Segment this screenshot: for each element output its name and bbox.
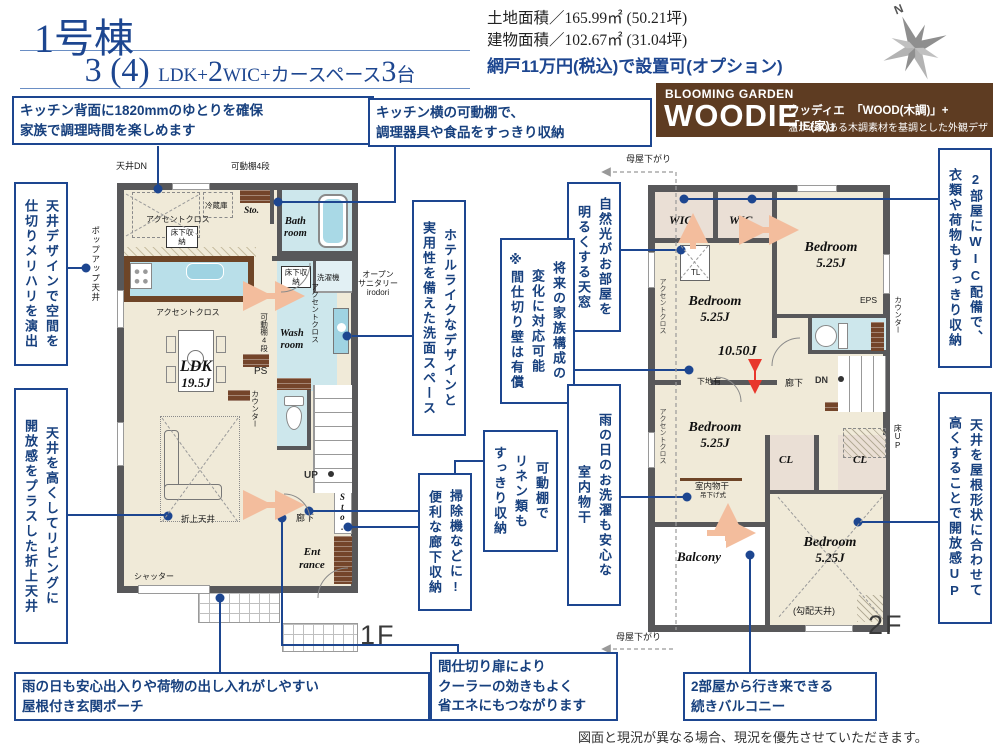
wall <box>655 522 765 527</box>
callout-col: 天井デザインで空間を <box>42 189 61 359</box>
disclaimer: 図面と現況が異なる場合、現況を優先させていただきます。 <box>578 727 928 746</box>
label-up: UP <box>304 470 318 482</box>
callout-col: リネン類も <box>511 437 530 545</box>
callout-partition-door: 間仕切り扉により クーラーの効きもよく 省エネにもつながります <box>430 652 618 721</box>
callout-col: 自然光がお部屋を <box>595 189 614 325</box>
stairs-2f <box>838 356 886 412</box>
label-bedroom-4: Bedroom 5.25J <box>780 535 880 566</box>
callout-col: 高くすることで開放感UP <box>945 399 964 617</box>
callout-col: 雨の日のお洗濯も安心な <box>595 391 614 599</box>
label-moya-bottom: 母屋下がり <box>616 632 661 642</box>
land-area: 土地面積／165.99㎡ (50.21坪) <box>487 8 783 30</box>
callout-col: すっきり収納 <box>490 437 509 545</box>
callout-col: 2部屋にWIC配備で、 <box>966 155 985 361</box>
label-shitaji: 下地有 <box>697 377 721 386</box>
label-accent-wash: アクセントクロス <box>310 283 319 343</box>
shutter-window <box>138 585 210 594</box>
callout-indoor-drying: 雨の日のお洗濯も安心な 室内物干 <box>567 384 621 606</box>
brand-tagline: 温かみのある木調素材を基調とした外観デザイン <box>788 119 993 149</box>
sanitary-sink <box>333 308 349 354</box>
wall <box>777 314 886 318</box>
building-area: 建物面積／102.67㎡ (31.04坪) <box>487 30 783 52</box>
label-cl1: CL <box>779 454 793 467</box>
label-underfloor-1: 床下収納 <box>166 226 198 248</box>
layout-part: 3 (4) <box>85 52 159 89</box>
area-info: 土地面積／165.99㎡ (50.21坪) 建物面積／102.67㎡ (31.0… <box>487 8 783 80</box>
label-folded-ceiling: 折上天井 <box>181 515 215 525</box>
label-sto-top: Sto. <box>244 206 259 217</box>
hall-storage-shelf <box>334 536 352 584</box>
callout-line: 省エネにもつながります <box>438 696 610 716</box>
callout-col: 室内物干 <box>574 391 593 599</box>
floor-label-2f: 2F <box>868 610 904 641</box>
label-ceiling-dn: 天井DN <box>116 161 147 171</box>
layout-part: LDK+ <box>158 65 208 86</box>
toilet-shelf <box>277 378 311 390</box>
label-hallway-1f: 廊下 <box>296 513 314 523</box>
stove-icon <box>130 263 152 289</box>
callout-col: 便利な廊下収納 <box>425 480 444 604</box>
screen-option-note: 網戸11万円(税込)で設置可(オプション) <box>487 55 783 80</box>
label-movable-shelf-top: 可動棚4段 <box>231 162 270 172</box>
callout-wic-rooms: 2部屋にWIC配備で、 衣類や荷物もすっきり収納 <box>938 148 992 368</box>
label-bedroom-3: Bedroom 5.25J <box>667 420 763 451</box>
wall <box>713 192 718 238</box>
layout-part: WIC+カースペース <box>223 65 381 86</box>
label-total-j: 10.50J <box>718 344 757 360</box>
callout-col: 明るくする天窓 <box>574 189 593 325</box>
label-counter-2f: カウンター <box>893 296 902 334</box>
label-sto-hall: Sto. <box>337 492 347 532</box>
callout-line: キッチン横の可動棚で、 <box>376 103 644 123</box>
callout-line: 2部屋から行き来できる <box>691 677 869 697</box>
brand-reading: ウッディエ <box>788 105 845 117</box>
callout-line: クーラーの効きもよく <box>438 677 610 697</box>
storage-top-shelf <box>240 190 270 203</box>
label-shutter: シャッター <box>134 572 174 581</box>
label-fridge: 冷蔵庫 <box>205 202 228 211</box>
label-eps: EPS <box>860 296 877 306</box>
wall <box>655 380 681 385</box>
callout-line: 家族で調理時間を楽しめます <box>20 121 366 141</box>
balcony-area <box>655 527 765 625</box>
callout-line: 屋根付き玄関ポーチ <box>22 697 422 717</box>
label-hallway-2f: 廊下 <box>785 378 803 388</box>
callout-hotel-wash: ホテルライクなデザインと 実用性を備えた洗面スペース <box>412 200 466 436</box>
label-accent-2: アクセントクロス <box>658 408 666 464</box>
layout-summary: 3 (4) LDK+2WIC+カースペース3台 <box>60 52 440 90</box>
callout-future-family: 将来の家族構成の 変化に対応可能 ※間仕切り壁は有償 <box>500 238 575 404</box>
label-accent-ldk: アクセントクロス <box>156 308 220 317</box>
label-balcony: Balcony <box>677 550 721 565</box>
wall <box>272 256 352 261</box>
window <box>117 290 124 328</box>
window <box>172 183 210 190</box>
callout-hall-storage: 掃除機などに! 便利な廊下収納 <box>418 473 472 611</box>
window <box>648 432 655 468</box>
chair <box>166 336 176 353</box>
label-floor-up: 床UP <box>893 424 902 450</box>
label-accent-1: アクセントクロス <box>658 278 666 334</box>
callout-col: 開放感をプラスした折上天井 <box>21 395 40 637</box>
flyer-canvas: 1号棟 3 (4) LDK+2WIC+カースペース3台 土地面積／165.99㎡… <box>0 0 1000 750</box>
label-indoor-dry: 室内物干 <box>695 482 729 492</box>
callout-col: 天井を高くしてリビングに <box>42 395 61 637</box>
wall <box>765 490 770 625</box>
toilet-bowl-2f <box>815 325 837 347</box>
callout-col: 仕切りメリハリを演出 <box>21 189 40 359</box>
label-bedroom-2: Bedroom 5.25J <box>667 294 763 325</box>
window <box>797 185 837 192</box>
label-ps: PS <box>254 366 267 378</box>
brand-banner: BLOOMING GARDEN WOODIE ウッディエ 「WOOD(木調)」+… <box>656 83 993 137</box>
callout-porch: 雨の日も安心出入りや荷物の出し入れがしやすい 屋根付き玄関ポーチ <box>14 672 430 721</box>
folded-ceiling-outline <box>160 416 240 522</box>
callout-col: 将来の家族構成の <box>549 245 568 397</box>
callout-line: 雨の日も安心出入りや荷物の出し入れがしやすい <box>22 677 422 697</box>
layout-part: 2 <box>208 55 223 88</box>
callout-line: 続きバルコニー <box>691 697 869 717</box>
label-open-sanitary: オープン サニタリー irodori <box>352 270 404 298</box>
callout-sloped-ceiling: 天井を屋根形状に合わせて 高くすることで開放感UP <box>938 392 992 624</box>
toilet-tank-2f <box>838 323 848 349</box>
callout-line: キッチン背面に1820mmのゆとりを確保 <box>20 101 366 121</box>
callout-col: 掃除機などに! <box>446 480 465 604</box>
chair <box>216 336 226 353</box>
layout-part: 台 <box>396 65 415 86</box>
compass-n-label: N <box>892 2 905 17</box>
label-sloped-ceiling: (勾配天井) <box>793 606 835 616</box>
kitchen-sink <box>186 263 224 280</box>
label-accent-kitchen: アクセントクロス <box>146 215 210 224</box>
label-counter-1f: カウンター <box>250 390 259 428</box>
callout-col: ホテルライクなデザインと <box>440 207 459 429</box>
toilet-tank <box>284 396 304 406</box>
wall <box>655 238 777 243</box>
label-wic2: WIC <box>729 214 752 228</box>
callout-kitchen-shelf: キッチン横の可動棚で、 調理器具や食品をすっきり収納 <box>368 98 652 147</box>
callout-balcony: 2部屋から行き来できる 続きバルコニー <box>683 672 877 721</box>
label-washer: 洗濯機 <box>317 274 340 283</box>
layout-part: 3 <box>381 55 396 88</box>
label-ldk: LDK 19.5J <box>168 358 224 391</box>
window <box>117 422 124 466</box>
floor-plan-1f: 冷蔵庫 Sto. Bathroom アクセントクロス 床下収納 アクセントクロス <box>117 183 358 593</box>
label-bedroom-1: Bedroom 5.25J <box>783 240 879 271</box>
label-dn: DN <box>815 375 828 385</box>
label-popup-ceiling: ポップアップ天井 <box>90 226 100 302</box>
label-moya-top: 母屋下がり <box>626 154 671 164</box>
callout-col: 可動棚で <box>532 437 551 545</box>
wall <box>770 490 886 494</box>
callout-line: 調理器具や食品をすっきり収納 <box>376 123 644 143</box>
label-wic1: WIC <box>669 214 692 228</box>
callout-line: 間仕切り扉により <box>438 657 610 677</box>
window <box>648 252 655 288</box>
toilet-counter <box>871 322 884 351</box>
compass-icon: N <box>868 2 958 86</box>
callout-kitchen-back: キッチン背面に1820mmのゆとりを確保 家族で調理時間を楽しめます <box>12 96 374 145</box>
label-tl: TL <box>691 268 700 277</box>
callout-col: 天井を屋根形状に合わせて <box>966 399 985 617</box>
label-underfloor-2: 床下収納 <box>281 266 311 288</box>
label-cl2: CL <box>853 454 867 467</box>
brand-name: WOODIE <box>664 98 799 134</box>
label-movable-shelf-side: 可動棚4段 <box>259 313 268 352</box>
callout-linen-shelf: 可動棚で リネン類も すっきり収納 <box>483 430 558 552</box>
floor-label-1f: 1F <box>360 620 396 651</box>
callout-skylight: 自然光がお部屋を 明るくする天窓 <box>567 182 621 332</box>
stairs-1f <box>313 385 352 493</box>
label-entrance: Entrance <box>289 546 335 571</box>
bathtub <box>318 194 348 248</box>
porch-grid <box>282 623 358 652</box>
callout-ceiling-design: 天井デザインで空間を 仕切りメリハリを演出 <box>14 182 68 366</box>
window <box>805 625 853 632</box>
label-bathroom: Bathroom <box>284 216 307 240</box>
wall <box>814 435 819 490</box>
callout-folded-ceiling: 天井を高くしてリビングに 開放感をプラスした折上天井 <box>14 388 68 644</box>
callout-col: 変化に対応可能 <box>528 245 547 397</box>
callout-col: 衣類や荷物もすっきり収納 <box>945 155 964 361</box>
label-washroom: Washroom <box>280 328 304 352</box>
callout-col: 実用性を備えた洗面スペース <box>419 207 438 429</box>
window <box>883 254 890 294</box>
floor-plan-2f: WIC WIC TL Bedroom 5.25J アクセントクロス アクセントク… <box>648 185 890 632</box>
callout-col: ※間仕切り壁は有償 <box>507 245 526 397</box>
counter-block <box>228 390 250 401</box>
label-indoor-dry-sub: 吊下げ式 <box>700 492 726 499</box>
